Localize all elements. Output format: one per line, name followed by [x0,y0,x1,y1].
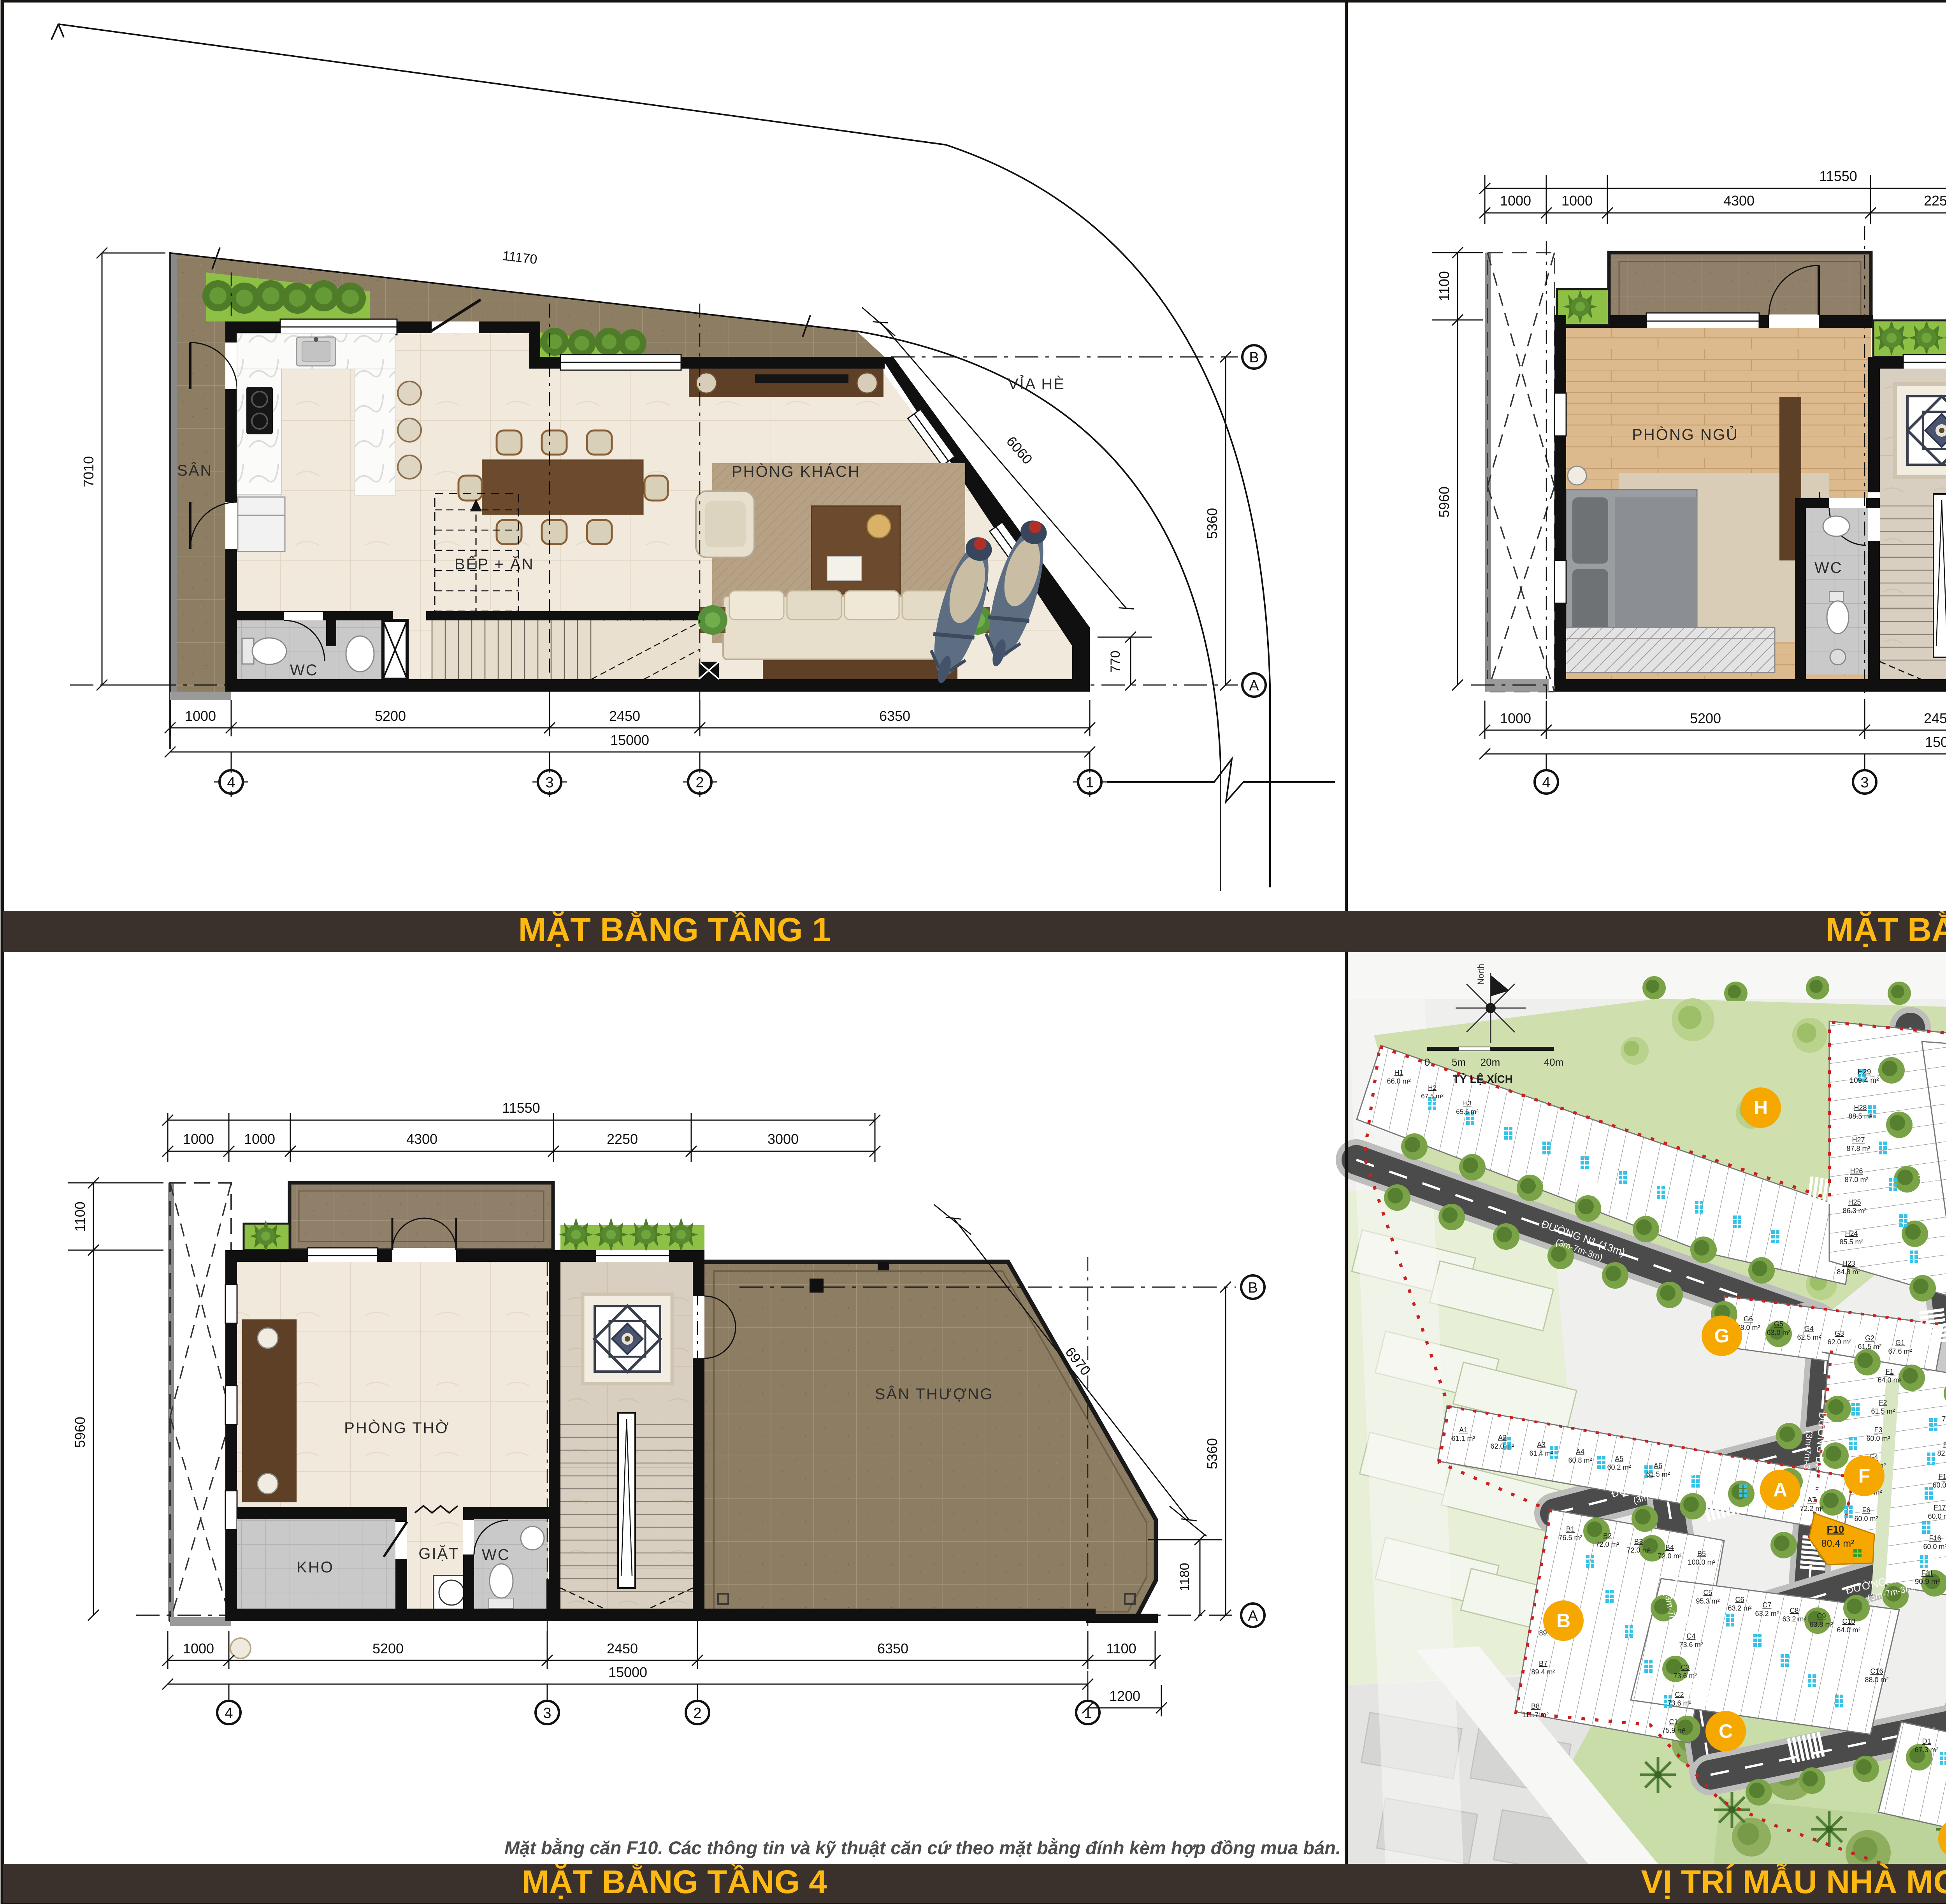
svg-text:TỶ LỆ XÍCH: TỶ LỆ XÍCH [1453,1073,1513,1085]
svg-text:72.2 m²: 72.2 m² [1800,1505,1823,1512]
svg-text:C8: C8 [1790,1607,1798,1614]
svg-text:65.6 m²: 65.6 m² [1456,1108,1479,1115]
svg-text:2450: 2450 [607,1641,638,1656]
svg-text:770: 770 [1108,651,1123,673]
svg-text:6350: 6350 [879,708,910,724]
svg-text:61.5 m²: 61.5 m² [1871,1407,1895,1415]
svg-text:B1: B1 [1566,1525,1575,1533]
svg-text:76.5 m²: 76.5 m² [1558,1534,1582,1542]
svg-text:F10: F10 [1827,1523,1844,1535]
svg-text:4300: 4300 [1723,193,1755,209]
svg-text:109.4 m²: 109.4 m² [1850,1077,1879,1085]
svg-text:63.0 m²: 63.0 m² [1767,1329,1790,1337]
svg-text:H25: H25 [1848,1198,1861,1206]
svg-text:6350: 6350 [877,1641,908,1656]
svg-text:63.2 m²: 63.2 m² [1728,1604,1751,1612]
svg-text:85.5 m²: 85.5 m² [1839,1238,1863,1246]
svg-text:C2: C2 [1675,1691,1684,1698]
svg-text:1000: 1000 [183,1131,214,1147]
svg-text:G4: G4 [1804,1325,1814,1333]
svg-text:H3: H3 [1463,1100,1472,1107]
svg-text:H29: H29 [1858,1068,1871,1076]
svg-text:F3: F3 [1874,1426,1882,1434]
svg-text:C9: C9 [1817,1612,1826,1620]
svg-text:KHO: KHO [297,1559,334,1576]
svg-text:C1: C1 [1669,1718,1678,1726]
svg-text:H2: H2 [1428,1084,1437,1091]
svg-text:89.4 m²: 89.4 m² [1531,1668,1555,1676]
svg-text:88.0 m²: 88.0 m² [1865,1676,1888,1684]
svg-text:A: A [1773,1479,1787,1501]
svg-text:1200: 1200 [1109,1688,1140,1704]
svg-text:H26: H26 [1850,1167,1863,1175]
svg-text:G: G [1714,1325,1730,1347]
svg-text:100.0 m²: 100.0 m² [1688,1558,1715,1566]
svg-text:73.6 m²: 73.6 m² [1679,1641,1703,1649]
svg-text:MẶT BẰNG TẦNG 1: MẶT BẰNG TẦNG 1 [518,911,831,948]
svg-text:1: 1 [1084,1705,1092,1721]
svg-text:MẶT BẰNG TẦNG 4: MẶT BẰNG TẦNG 4 [522,1864,827,1900]
svg-text:3: 3 [1860,775,1869,791]
svg-text:C: C [1719,1720,1733,1742]
svg-text:MẶT BẰNG TẦNG 2 → 3: MẶT BẰNG TẦNG 2 → 3 [1826,911,1946,948]
svg-text:B2: B2 [1603,1532,1612,1540]
svg-text:C4: C4 [1686,1632,1695,1640]
svg-text:WC: WC [482,1546,510,1563]
svg-text:WC: WC [1814,559,1843,576]
svg-text:87.8 m²: 87.8 m² [1846,1145,1870,1152]
svg-text:88.5 m²: 88.5 m² [1848,1112,1872,1120]
svg-text:2250: 2250 [1924,193,1946,209]
svg-text:5960: 5960 [72,1417,88,1448]
svg-text:PHÒNG KHÁCH: PHÒNG KHÁCH [732,463,861,480]
svg-text:61.1 m²: 61.1 m² [1451,1435,1475,1442]
svg-text:63.2 m²: 63.2 m² [1782,1615,1806,1623]
svg-text:1000: 1000 [1561,193,1593,209]
svg-text:C16: C16 [1870,1667,1883,1675]
svg-text:90.9 m²: 90.9 m² [1915,1578,1940,1586]
svg-text:72.0 m²: 72.0 m² [1595,1540,1619,1548]
svg-text:3: 3 [543,1705,551,1721]
svg-text:F6: F6 [1862,1506,1870,1514]
svg-text:2250: 2250 [607,1131,638,1147]
svg-text:11550: 11550 [1819,168,1857,184]
svg-text:H1: H1 [1394,1069,1403,1077]
svg-text:80.4 m²: 80.4 m² [1821,1538,1855,1549]
svg-text:11550: 11550 [502,1100,540,1116]
svg-text:B: B [1556,1610,1570,1632]
svg-text:75.9 m²: 75.9 m² [1661,1727,1685,1734]
svg-text:G1: G1 [1895,1339,1905,1347]
svg-text:5200: 5200 [372,1641,404,1656]
svg-text:76.0 m²: 76.0 m² [1942,1415,1946,1423]
svg-text:F19: F19 [1943,1441,1946,1449]
svg-text:1000: 1000 [183,1641,214,1656]
svg-text:B5: B5 [1697,1550,1706,1558]
svg-text:60.0 m²: 60.0 m² [1932,1481,1946,1489]
svg-text:G2: G2 [1865,1334,1874,1342]
svg-text:F1: F1 [1885,1368,1893,1375]
svg-text:66.0 m²: 66.0 m² [1387,1077,1410,1085]
svg-text:87.0 m²: 87.0 m² [1844,1176,1868,1184]
svg-text:1000: 1000 [1500,710,1531,726]
svg-text:GIẶT: GIẶT [418,1545,459,1562]
svg-text:A7: A7 [1807,1496,1816,1504]
svg-text:7010: 7010 [81,456,97,487]
svg-text:4300: 4300 [406,1131,437,1147]
svg-text:5200: 5200 [375,708,406,724]
svg-text:PHÒNG NGỦ: PHÒNG NGỦ [1632,425,1739,443]
svg-text:67.3 m²: 67.3 m² [1914,1746,1938,1754]
svg-text:A2: A2 [1498,1434,1507,1442]
svg-text:H: H [1754,1097,1768,1119]
svg-text:A: A [1248,1608,1258,1624]
svg-text:SÂN THƯỢNG: SÂN THƯỢNG [875,1385,993,1403]
svg-text:2: 2 [693,1705,701,1721]
svg-text:40m: 40m [1544,1056,1564,1068]
svg-text:1: 1 [1085,775,1094,791]
svg-text:G6: G6 [1744,1315,1753,1323]
svg-text:Mặt bằng căn F10. Các thông ti: Mặt bằng căn F10. Các thông tin và kỹ th… [504,1837,1341,1858]
svg-text:H23: H23 [1842,1259,1855,1267]
svg-text:82.5 m²: 82.5 m² [1937,1449,1946,1457]
svg-text:15000: 15000 [608,1664,647,1680]
svg-text:1000: 1000 [244,1131,275,1147]
svg-text:G5: G5 [1774,1320,1783,1328]
svg-text:North: North [1476,964,1486,985]
svg-text:62.0 m²: 62.0 m² [1490,1442,1514,1450]
svg-text:C3: C3 [1681,1663,1690,1671]
svg-text:D1: D1 [1922,1737,1931,1745]
svg-text:5m: 5m [1452,1056,1466,1068]
svg-text:61.5 m²: 61.5 m² [1858,1343,1881,1351]
svg-text:3: 3 [545,775,553,791]
svg-text:73.6 m²: 73.6 m² [1667,1699,1691,1707]
svg-text:62.0 m²: 62.0 m² [1827,1338,1851,1346]
svg-text:4: 4 [225,1705,233,1721]
svg-text:B8: B8 [1531,1702,1540,1710]
svg-text:5960: 5960 [1436,487,1452,518]
svg-text:WC: WC [290,662,318,679]
svg-text:SÂN: SÂN [177,462,213,479]
svg-text:C7: C7 [1762,1601,1771,1609]
svg-text:C10: C10 [1842,1618,1855,1625]
svg-text:1000: 1000 [1500,193,1531,209]
svg-text:84.8 m²: 84.8 m² [1837,1268,1860,1276]
svg-text:A3: A3 [1537,1441,1546,1449]
svg-text:20m: 20m [1481,1056,1500,1068]
svg-text:64.0 m²: 64.0 m² [1878,1376,1901,1384]
svg-text:VỈA HÈ: VỈA HÈ [1008,375,1065,393]
svg-text:A5: A5 [1615,1455,1623,1463]
svg-text:2450: 2450 [609,708,640,724]
svg-text:67.6 m²: 67.6 m² [1888,1347,1912,1355]
svg-text:H24: H24 [1845,1230,1858,1237]
svg-text:63.8 m²: 63.8 m² [1809,1621,1833,1628]
svg-text:60.0 m²: 60.0 m² [1866,1435,1890,1442]
svg-text:73.6 m²: 73.6 m² [1673,1672,1697,1680]
svg-text:4: 4 [227,775,235,791]
svg-text:A1: A1 [1459,1426,1468,1434]
svg-text:5360: 5360 [1204,508,1220,539]
svg-text:15000: 15000 [610,732,649,748]
svg-text:72.0 m²: 72.0 m² [1626,1546,1650,1554]
svg-text:86.3 m²: 86.3 m² [1842,1207,1866,1215]
svg-text:1100: 1100 [1436,271,1452,301]
svg-text:VỊ TRÍ MẪU NHÀ MG8: VỊ TRÍ MẪU NHÀ MG8 [1641,1864,1946,1900]
svg-text:F11: F11 [1921,1569,1933,1577]
svg-text:5360: 5360 [1204,1438,1220,1469]
svg-text:111.7 m²: 111.7 m² [1522,1711,1549,1719]
svg-text:C5: C5 [1703,1589,1712,1597]
svg-text:F2: F2 [1879,1399,1887,1407]
svg-text:1180: 1180 [1177,1563,1192,1591]
svg-text:1000: 1000 [185,708,216,724]
svg-text:F16: F16 [1929,1534,1941,1542]
svg-text:72.0 m²: 72.0 m² [1658,1552,1681,1560]
svg-text:H27: H27 [1852,1136,1865,1144]
svg-text:15000: 15000 [1925,734,1946,750]
svg-text:61.4 m²: 61.4 m² [1529,1449,1553,1457]
svg-text:60.0 m²: 60.0 m² [1928,1512,1946,1520]
svg-text:F18: F18 [1938,1473,1946,1481]
svg-text:B: B [1249,350,1259,366]
svg-text:A6: A6 [1654,1462,1662,1470]
svg-text:64.0 m²: 64.0 m² [1837,1626,1860,1634]
svg-text:H28: H28 [1854,1104,1867,1112]
svg-text:60.0 m²: 60.0 m² [1854,1515,1878,1523]
svg-text:60.0 m²: 60.0 m² [1923,1543,1946,1551]
svg-text:5200: 5200 [1690,710,1721,726]
svg-text:A4: A4 [1576,1448,1584,1456]
svg-text:0: 0 [1424,1056,1430,1068]
svg-text:C6: C6 [1735,1596,1744,1604]
svg-text:60.2 m²: 60.2 m² [1607,1463,1631,1471]
svg-text:63.2 m²: 63.2 m² [1755,1610,1779,1618]
svg-text:F17: F17 [1934,1504,1946,1512]
svg-text:3000: 3000 [768,1131,799,1147]
svg-text:B3: B3 [1634,1538,1643,1546]
svg-text:61.5 m²: 61.5 m² [1646,1470,1670,1478]
svg-text:PHÒNG THỜ: PHÒNG THỜ [344,1419,450,1437]
svg-text:62.5 m²: 62.5 m² [1797,1333,1821,1341]
svg-text:B4: B4 [1665,1544,1674,1551]
svg-text:B: B [1248,1280,1258,1296]
svg-text:60.8 m²: 60.8 m² [1568,1456,1592,1464]
svg-text:B7: B7 [1539,1660,1547,1667]
svg-text:G3: G3 [1835,1330,1844,1337]
svg-text:4: 4 [1542,775,1550,791]
svg-text:F: F [1858,1465,1870,1487]
svg-text:2450: 2450 [1924,710,1946,726]
svg-text:1100: 1100 [1106,1641,1136,1656]
svg-text:95.3 m²: 95.3 m² [1696,1597,1719,1605]
svg-text:A: A [1249,678,1259,694]
svg-text:1100: 1100 [72,1201,88,1231]
svg-text:2: 2 [696,775,704,791]
svg-text:67.5 m²: 67.5 m² [1421,1093,1444,1100]
